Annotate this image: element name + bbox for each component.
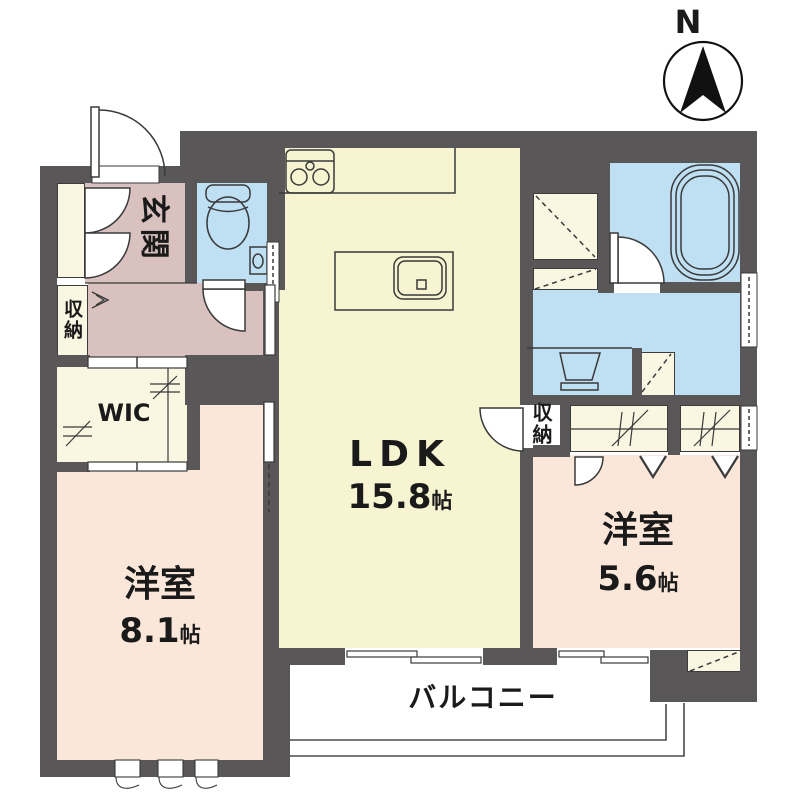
washbasin-icon xyxy=(527,348,632,390)
compass-north-label: N xyxy=(668,6,708,40)
bedroom-west-label: 洋室 xyxy=(112,566,208,604)
closet-marks xyxy=(571,410,739,446)
ldk-balcony-window xyxy=(345,648,483,665)
kitchen-counter xyxy=(279,148,455,193)
bedroom-east-door xyxy=(575,457,603,485)
toilet-door xyxy=(203,280,245,331)
bathtub-icon xyxy=(671,165,739,280)
ldk-size: 15.8帖 xyxy=(340,480,460,516)
closet-door-v-marks xyxy=(640,456,738,477)
bedroom-east-label: 洋室 xyxy=(590,512,686,550)
storage-left-label: 収納 xyxy=(61,299,81,341)
entrance-door xyxy=(91,107,165,183)
genkan-step xyxy=(85,283,197,308)
genkan-label: 玄関 xyxy=(137,179,169,279)
hall-ldk-sliding-door xyxy=(265,285,275,355)
bedroom-west-size: 8.1帖 xyxy=(112,614,208,650)
bedroom-west-windows xyxy=(115,760,218,788)
toilet-basin-icon xyxy=(250,247,267,274)
toilet-icon xyxy=(206,185,250,249)
wic-label: WIC xyxy=(96,401,152,426)
bedroom-east-size: 5.6帖 xyxy=(590,562,686,598)
floor-plan: N 玄関 収納 WIC LDK 15.8帖 洋室 8.1帖 洋室 5.6帖 収納… xyxy=(0,0,800,800)
stove-icon xyxy=(286,150,334,193)
side-windows xyxy=(741,273,757,450)
washroom-door xyxy=(480,405,533,451)
bathroom-door xyxy=(610,233,664,293)
compass-north-icon xyxy=(664,42,742,120)
storage-right-label: 収納 xyxy=(530,402,551,446)
balcony-label: バルコニー xyxy=(388,683,578,712)
kitchen-island xyxy=(335,252,453,310)
bedroom-west-sliding-door xyxy=(264,402,274,512)
ldk-label: LDK xyxy=(340,436,460,474)
shoe-cabinet-doors xyxy=(85,188,130,278)
bedroom-east-balcony-window xyxy=(557,648,650,665)
